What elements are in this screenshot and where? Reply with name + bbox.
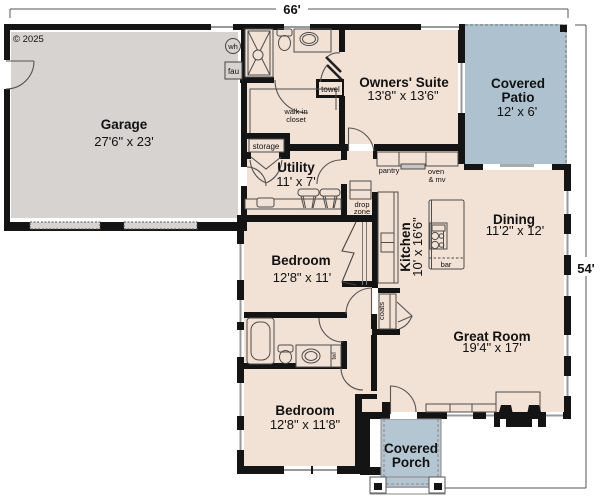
- svg-text:coats: coats: [377, 302, 386, 320]
- svg-text:fau: fau: [228, 67, 239, 76]
- svg-text:12'8" x 11': 12'8" x 11': [273, 270, 332, 285]
- svg-text:towel: towel: [321, 85, 340, 94]
- svg-text:Utility: Utility: [277, 160, 315, 175]
- svg-text:13'8" x 13'6": 13'8" x 13'6": [367, 88, 439, 103]
- svg-text:zone: zone: [354, 207, 370, 216]
- svg-text:closet: closet: [286, 115, 307, 124]
- svg-text:Garage: Garage: [101, 117, 148, 132]
- svg-text:Covered: Covered: [491, 76, 545, 91]
- svg-text:11' x 7': 11' x 7': [276, 174, 315, 189]
- svg-text:12'8" x 11'8": 12'8" x 11'8": [270, 417, 341, 432]
- svg-text:Covered: Covered: [384, 441, 438, 456]
- svg-text:11'2" x 12': 11'2" x 12': [486, 223, 545, 238]
- svg-text:66': 66': [283, 2, 301, 17]
- svg-text:pantry: pantry: [379, 166, 400, 175]
- svg-text:Bedroom: Bedroom: [275, 403, 334, 418]
- svg-text:12' x 6': 12' x 6': [497, 104, 537, 119]
- svg-text:& mv: & mv: [428, 175, 445, 184]
- svg-text:10' x 16'6": 10' x 16'6": [410, 217, 425, 277]
- svg-text:bar: bar: [441, 260, 452, 269]
- svg-text:54': 54': [577, 261, 595, 276]
- svg-text:27'6" x 23': 27'6" x 23': [94, 134, 153, 149]
- svg-text:Bedroom: Bedroom: [271, 253, 330, 268]
- svg-text:Patio: Patio: [501, 90, 534, 105]
- svg-text:Porch: Porch: [392, 455, 430, 470]
- svg-text:wh: wh: [227, 42, 238, 51]
- svg-text:© 2025: © 2025: [13, 34, 44, 45]
- svg-text:twl: twl: [332, 352, 338, 359]
- svg-text:19'4" x 17': 19'4" x 17': [462, 340, 521, 355]
- svg-text:storage: storage: [253, 142, 280, 151]
